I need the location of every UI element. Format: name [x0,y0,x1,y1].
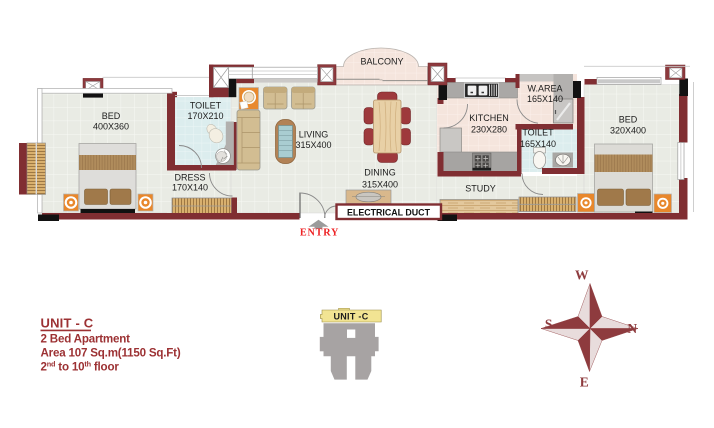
svg-text:N: N [627,321,637,336]
svg-text:TOILET: TOILET [522,128,554,138]
svg-text:165X140: 165X140 [520,139,556,149]
svg-text:UNIT -C: UNIT -C [333,312,368,322]
svg-text:E: E [580,375,589,390]
svg-text:230X280: 230X280 [471,125,507,135]
svg-text:DINING: DINING [364,168,396,178]
svg-text:170X210: 170X210 [187,111,223,121]
svg-text:TOILET: TOILET [190,101,222,111]
svg-text:ENTRY: ENTRY [300,228,339,239]
svg-text:315X400: 315X400 [295,140,331,150]
svg-text:315X400: 315X400 [362,179,398,189]
svg-text:BALCONY: BALCONY [360,56,403,66]
svg-text:S: S [545,316,553,331]
svg-text:KITCHEN: KITCHEN [469,113,509,123]
svg-text:STUDY: STUDY [465,184,496,194]
svg-text:BED: BED [619,115,638,125]
svg-text:W: W [575,268,589,283]
svg-text:BED: BED [102,111,121,121]
svg-text:ELECTRICAL DUCT: ELECTRICAL DUCT [347,206,430,217]
svg-text:170X140: 170X140 [172,183,208,193]
svg-text:DRESS: DRESS [174,173,205,183]
svg-text:2 Bed Apartment: 2 Bed Apartment [41,333,131,346]
svg-text:320X400: 320X400 [610,126,646,136]
svg-text:400X360: 400X360 [93,122,129,132]
svg-text:W.AREA: W.AREA [527,84,562,94]
svg-text:UNIT - C: UNIT - C [41,316,94,331]
svg-text:Area 107 Sq.m(1150 Sq.Ft): Area 107 Sq.m(1150 Sq.Ft) [41,347,181,360]
svg-text:165X140: 165X140 [527,94,563,104]
svg-text:LIVING: LIVING [299,130,329,140]
